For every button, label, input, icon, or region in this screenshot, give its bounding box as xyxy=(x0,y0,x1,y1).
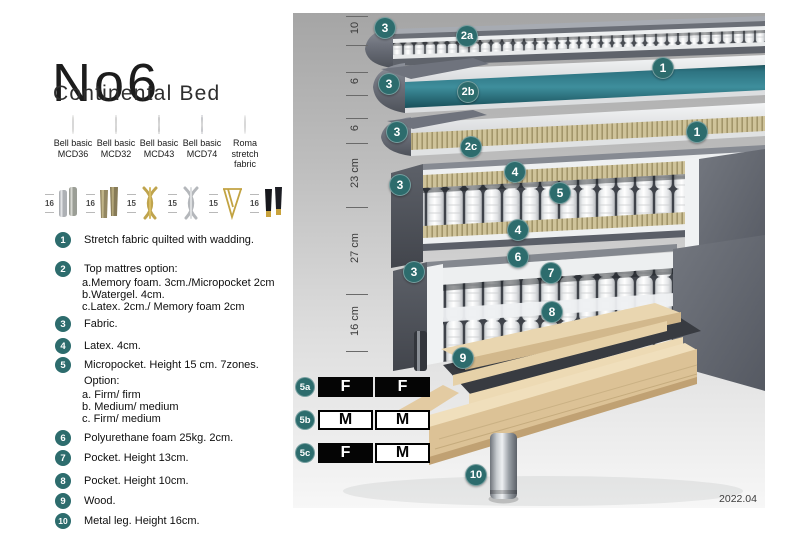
leg-option: 15 xyxy=(127,185,168,221)
fabric-swatch-label: Bell basic MCD74 xyxy=(181,138,223,159)
fabric-swatch-circle xyxy=(72,115,74,134)
leg-option: 16 xyxy=(86,185,127,221)
firmness-cell: F xyxy=(318,443,373,463)
leg-height: 15 xyxy=(209,195,218,212)
callout-badge: 3 xyxy=(374,17,396,39)
info-panel: No6 Continental Bed Bell basic MCD36 Bel… xyxy=(0,0,293,533)
firmness-row-label: 5b xyxy=(295,410,315,430)
callout-badge: 7 xyxy=(540,262,562,284)
list-item: 8 Pocket. Height 10cm. xyxy=(55,473,287,489)
list-item-number: 2 xyxy=(55,261,71,277)
firmness-row-label: 5a xyxy=(295,377,315,397)
fabric-swatch-label: Bell basic MCD32 xyxy=(95,138,137,159)
list-item: 4 Latex. 4cm. xyxy=(55,338,287,354)
leg-option: 16 xyxy=(45,185,86,221)
list-item-number: 6 xyxy=(55,430,71,446)
callout-badge: 1 xyxy=(652,57,674,79)
metal-leg xyxy=(489,433,519,504)
firmness-cell: F xyxy=(318,377,373,397)
list-item: 2 Top mattres option: a.Memory foam. 3cm… xyxy=(55,261,287,313)
callout-badge: 1 xyxy=(686,121,708,143)
firmness-cell: M xyxy=(375,443,430,463)
firmness-cell: M xyxy=(318,410,373,430)
fabric-swatches: Bell basic MCD36 Bell basic MCD32 Bell b… xyxy=(52,116,267,170)
callout-badge: 6 xyxy=(507,246,529,268)
page-subtitle: Continental Bed xyxy=(53,82,220,106)
list-item-number: 4 xyxy=(55,338,71,354)
callout-badge: 3 xyxy=(403,261,425,283)
callout-badge: 4 xyxy=(504,161,526,183)
leg-options: 16 16 15 xyxy=(45,185,291,221)
firmness-row: M M xyxy=(318,410,430,430)
callout-badge: 9 xyxy=(452,347,474,369)
dimension-label: 16 cm xyxy=(349,286,361,356)
list-item-number: 5 xyxy=(55,357,71,373)
fabric-swatch: Bell basic MCD74 xyxy=(181,116,223,170)
product-sheet: No6 Continental Bed Bell basic MCD36 Bel… xyxy=(0,0,800,533)
diagram-panel: 10 6 6 23 cm 27 cm 16 cm 3 2a 1 3 2b 3 2… xyxy=(293,13,765,508)
firmness-cell: M xyxy=(375,410,430,430)
leg-option: 16 xyxy=(250,185,291,221)
fabric-swatch-circle xyxy=(244,115,246,134)
version-label: 2022.04 xyxy=(719,493,757,505)
leg-twisted-silver-icon xyxy=(179,185,205,221)
fabric-swatch-circle xyxy=(201,115,203,134)
list-item-number: 7 xyxy=(55,450,71,466)
callout-badge: 4 xyxy=(507,219,529,241)
fabric-swatch: Bell basic MCD36 xyxy=(52,116,94,170)
list-item: 3 Fabric. xyxy=(55,316,287,332)
list-item: 5 Micropocket. Height 15 cm. 7zones. Opt… xyxy=(55,357,287,425)
callout-badge: 2b xyxy=(457,81,479,103)
fabric-swatch: Bell basic MCD43 xyxy=(138,116,180,170)
leg-height: 15 xyxy=(127,195,136,212)
list-item: 9 Wood. xyxy=(55,493,287,509)
leg-height: 16 xyxy=(45,195,54,212)
leg-block-wood-icon xyxy=(97,185,123,221)
list-item: 1 Stretch fabric quilted with wadding. xyxy=(55,232,287,248)
leg-hairpin-gold-icon xyxy=(220,185,246,221)
list-item: 6 Polyurethane foam 25kg. 2cm. xyxy=(55,430,287,446)
fabric-swatch-circle xyxy=(158,115,160,134)
list-item-number: 1 xyxy=(55,232,71,248)
fabric-swatch: Roma stretch fabric xyxy=(224,116,266,170)
firmness-row: F F xyxy=(318,377,430,397)
leg-height: 16 xyxy=(250,195,259,212)
firmness-cell: F xyxy=(375,377,430,397)
fabric-swatch-circle xyxy=(115,115,117,134)
firmness-row-label: 5c xyxy=(295,443,315,463)
dimension-label: 27 cm xyxy=(349,213,361,283)
layer-watergel xyxy=(373,55,765,113)
callout-badge: 10 xyxy=(465,464,487,486)
list-item: 7 Pocket. Height 13cm. xyxy=(55,450,287,466)
callout-badge: 8 xyxy=(541,301,563,323)
list-item: 10 Metal leg. Height 16cm. xyxy=(55,513,287,529)
fabric-swatch-label: Bell basic MCD36 xyxy=(52,138,94,159)
fabric-swatch-label: Bell basic MCD43 xyxy=(138,138,180,159)
callout-badge: 2c xyxy=(460,136,482,158)
fabric-swatch: Bell basic MCD32 xyxy=(95,116,137,170)
list-item-number: 9 xyxy=(55,493,71,509)
callout-badge: 5 xyxy=(549,182,571,204)
leg-height: 15 xyxy=(168,195,177,212)
firmness-row: F M xyxy=(318,443,430,463)
leg-cylinder-metal-icon xyxy=(56,185,82,221)
callout-badge: 3 xyxy=(386,121,408,143)
dimension-label: 23 cm xyxy=(349,138,361,208)
leg-option: 15 xyxy=(209,185,250,221)
leg-black-gold-tip-icon xyxy=(261,185,287,221)
bed-illustration xyxy=(293,13,765,508)
list-item-number: 10 xyxy=(55,513,71,529)
list-item-number: 3 xyxy=(55,316,71,332)
callout-badge: 3 xyxy=(378,73,400,95)
leg-option: 15 xyxy=(168,185,209,221)
leg-height: 16 xyxy=(86,195,95,212)
callout-badge: 2a xyxy=(456,25,478,47)
leg-twisted-gold-icon xyxy=(138,185,164,221)
layer-legend-list: 1 Stretch fabric quilted with wadding. 2… xyxy=(55,232,287,529)
fabric-swatch-label: Roma stretch fabric xyxy=(224,138,266,170)
list-item-number: 8 xyxy=(55,473,71,489)
callout-badge: 3 xyxy=(389,174,411,196)
